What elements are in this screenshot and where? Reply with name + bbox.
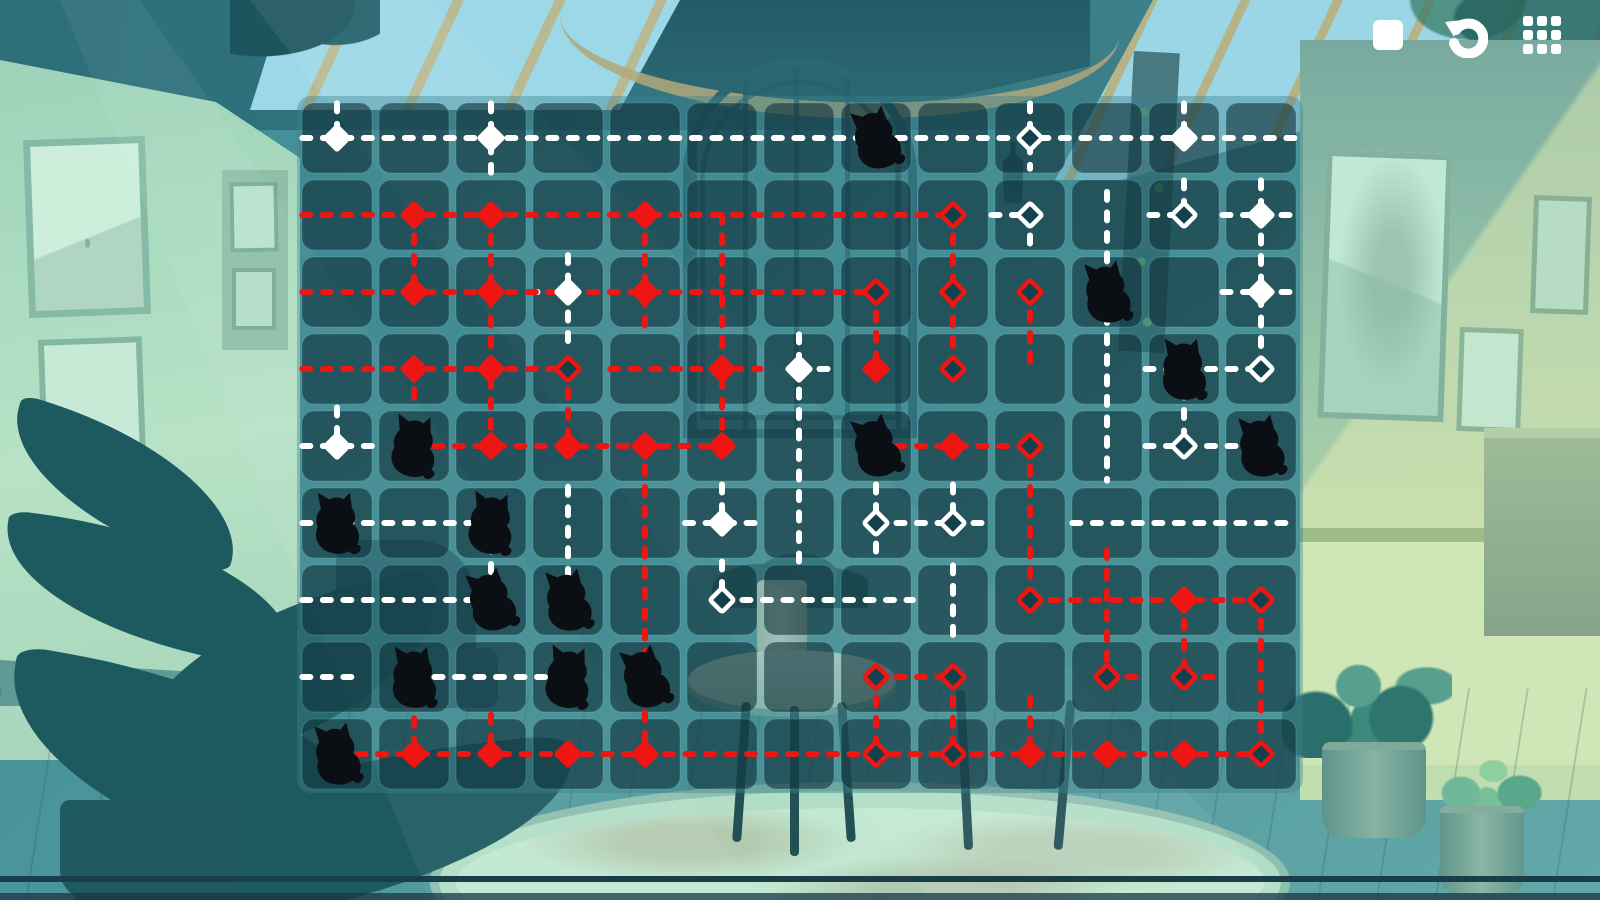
stop-button[interactable]: [1360, 7, 1416, 63]
undo-button[interactable]: [1437, 7, 1493, 63]
stop-square-icon: [1370, 17, 1406, 53]
grid-cell[interactable]: [764, 642, 834, 712]
puzzle-board: [0, 0, 1600, 900]
grid-cell[interactable]: [1149, 257, 1219, 327]
game-screen: [0, 0, 1600, 900]
grid-menu-icon: [1521, 14, 1563, 56]
toolbar: [1360, 6, 1570, 64]
grid-cell[interactable]: [687, 642, 757, 712]
undo-arrow-icon: [1442, 12, 1488, 58]
grid-cell[interactable]: [995, 334, 1065, 404]
levels-button[interactable]: [1514, 7, 1570, 63]
